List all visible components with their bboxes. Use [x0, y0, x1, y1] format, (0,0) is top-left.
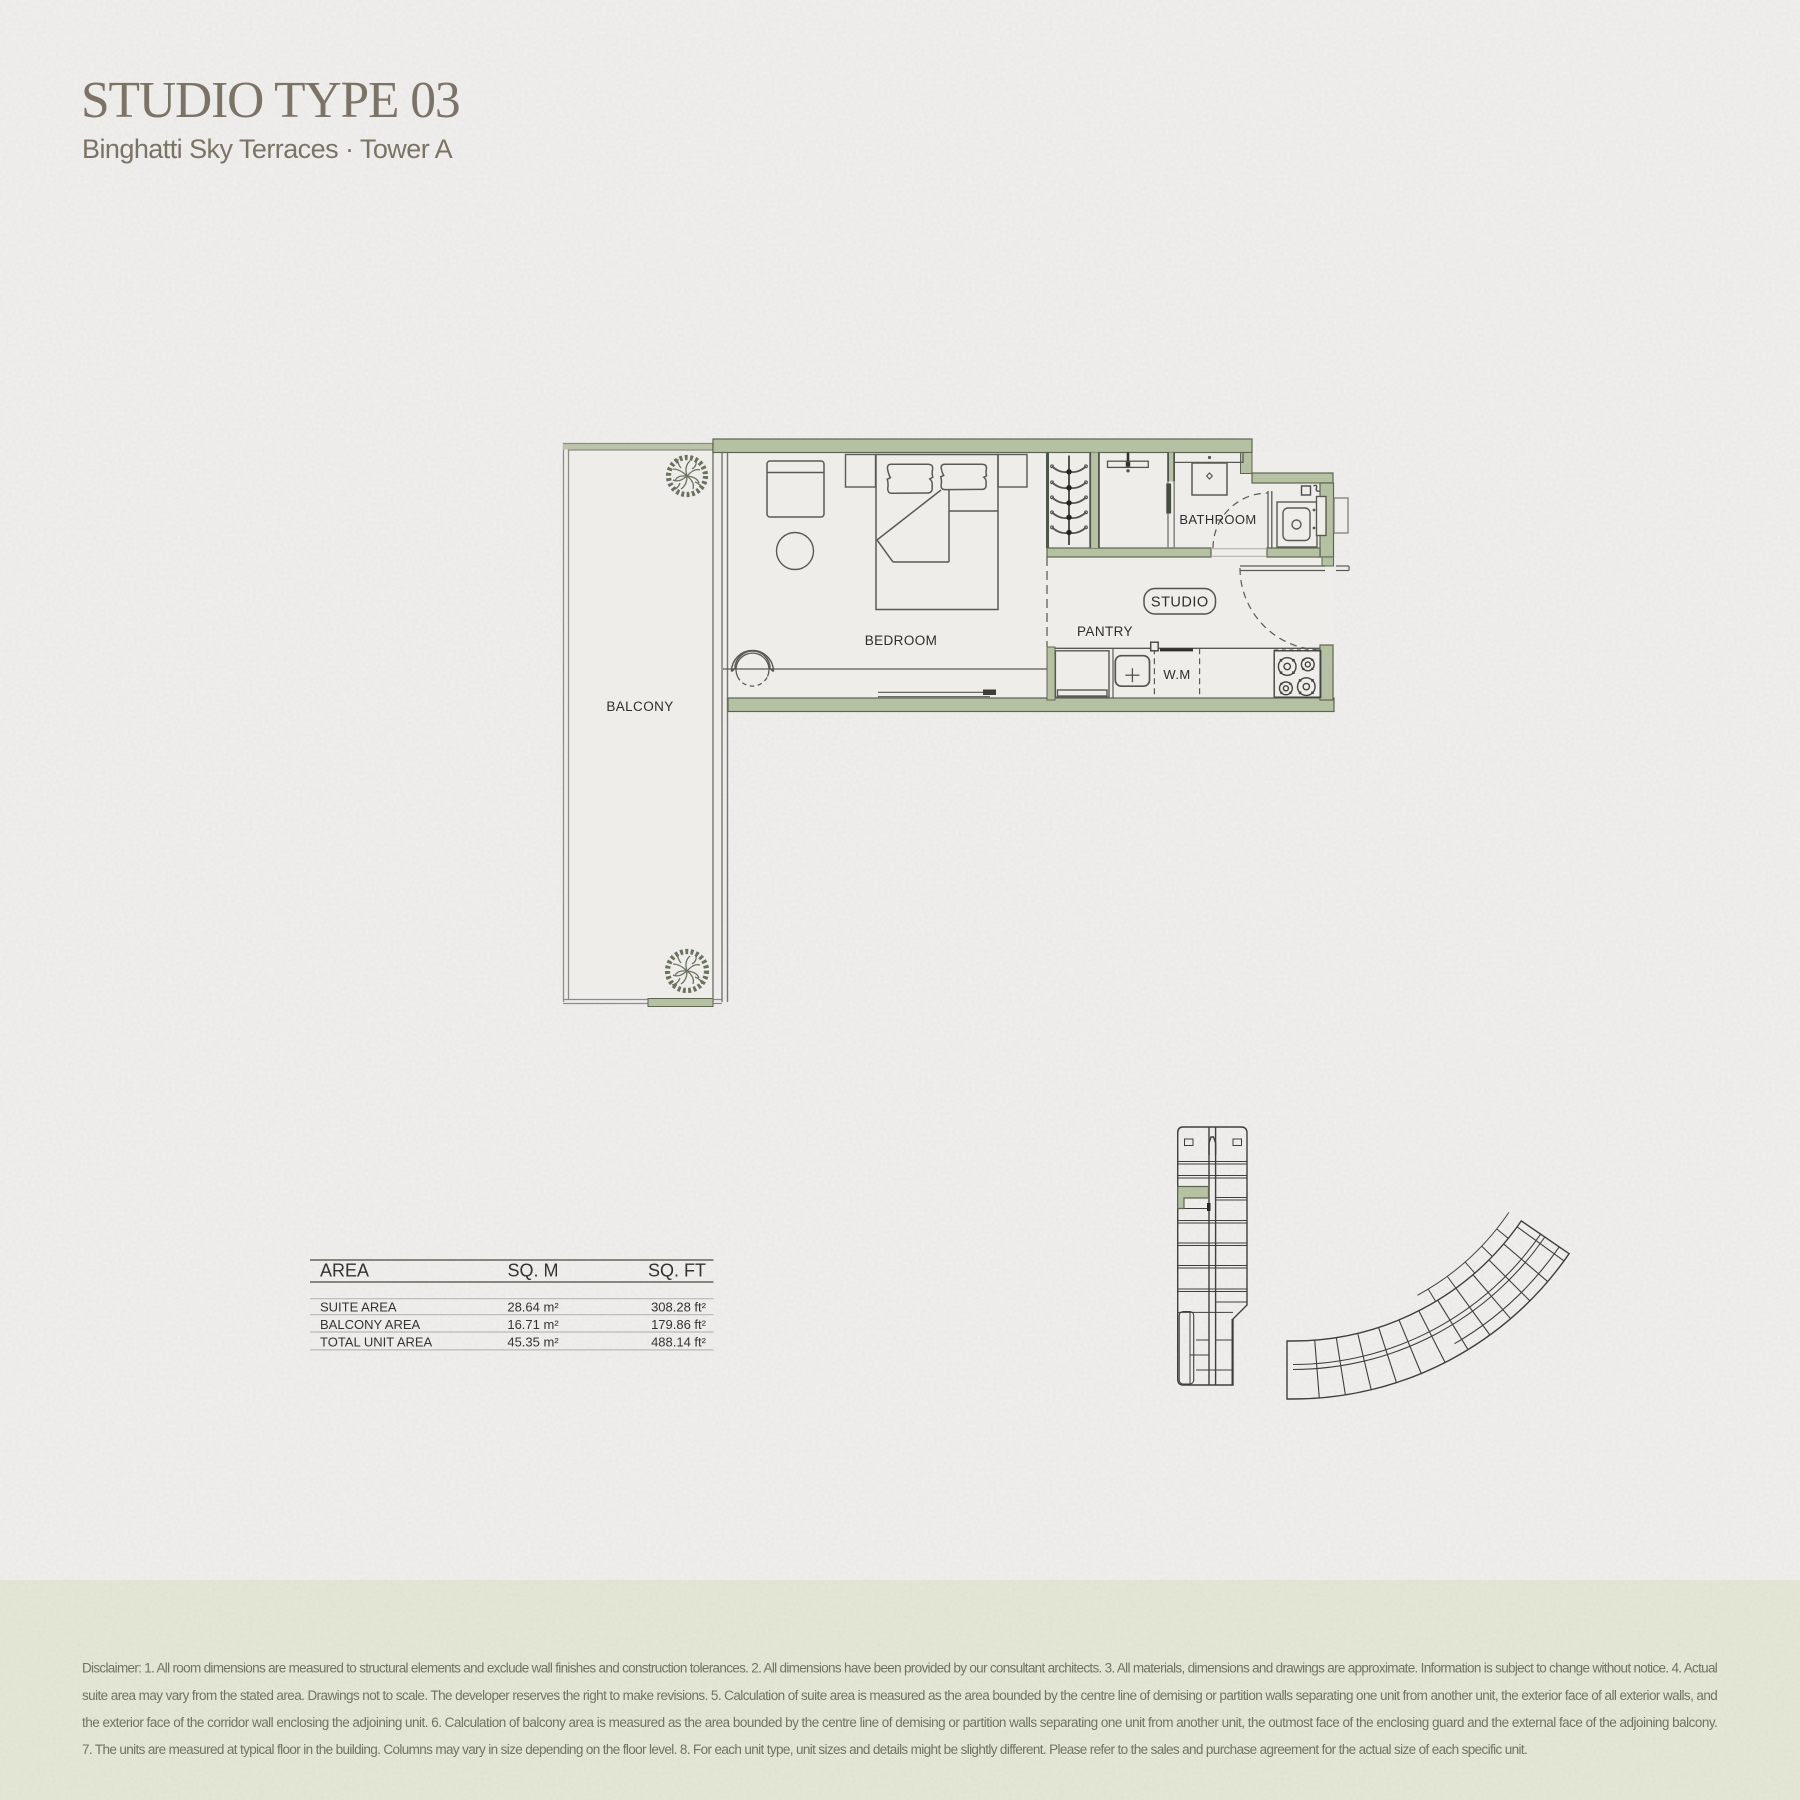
svg-text:STUDIO: STUDIO	[1151, 595, 1209, 611]
svg-text:179.86 ft²: 179.86 ft²	[651, 1317, 707, 1332]
svg-text:PANTRY: PANTRY	[1077, 624, 1133, 639]
svg-text:AREA: AREA	[320, 1261, 369, 1281]
svg-text:BALCONY: BALCONY	[606, 699, 673, 714]
svg-text:BEDROOM: BEDROOM	[865, 633, 938, 648]
svg-text:BALCONY AREA: BALCONY AREA	[320, 1317, 421, 1332]
svg-text:SUITE AREA: SUITE AREA	[320, 1300, 397, 1315]
svg-text:Binghatti Sky Terraces · Tower: Binghatti Sky Terraces · Tower A	[82, 134, 453, 164]
svg-text:suite area may vary from the s: suite area may vary from the stated area…	[82, 1688, 1718, 1703]
svg-text:the exterior face of the corri: the exterior face of the corridor wall e…	[82, 1715, 1718, 1730]
svg-text:SQ. M: SQ. M	[507, 1261, 558, 1281]
svg-text:308.28 ft²: 308.28 ft²	[651, 1300, 707, 1315]
svg-text:Disclaimer: 1. All room dimens: Disclaimer: 1. All room dimensions are m…	[82, 1661, 1718, 1676]
svg-text:STUDIO TYPE 03: STUDIO TYPE 03	[81, 72, 460, 129]
svg-text:45.35 m²: 45.35 m²	[507, 1334, 559, 1349]
svg-text:TOTAL UNIT AREA: TOTAL UNIT AREA	[320, 1334, 433, 1349]
svg-text:488.14 ft²: 488.14 ft²	[651, 1334, 707, 1349]
svg-text:W.M: W.M	[1163, 667, 1190, 682]
svg-text:SQ. FT: SQ. FT	[648, 1261, 706, 1281]
svg-text:BATHROOM: BATHROOM	[1179, 512, 1256, 527]
svg-text:28.64 m²: 28.64 m²	[507, 1300, 559, 1315]
svg-text:16.71 m²: 16.71 m²	[507, 1317, 559, 1332]
svg-text:7. The units are measured at t: 7. The units are measured at typical flo…	[82, 1742, 1528, 1757]
